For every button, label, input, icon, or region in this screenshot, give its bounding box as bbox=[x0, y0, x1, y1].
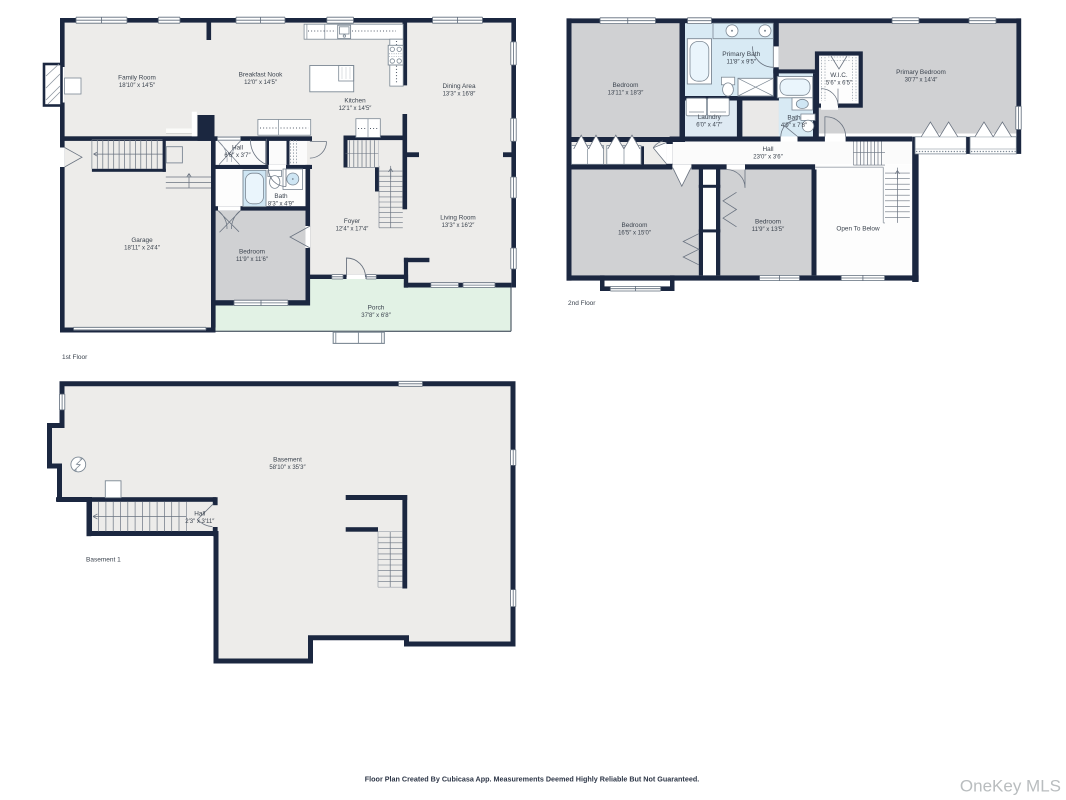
svg-text:18′10″ x 14′5″: 18′10″ x 14′5″ bbox=[119, 83, 156, 89]
svg-text:Primary Bedroom: Primary Bedroom bbox=[896, 69, 946, 76]
svg-text:Primary Bath: Primary Bath bbox=[722, 51, 760, 58]
svg-text:Breakfast Nook: Breakfast Nook bbox=[239, 72, 283, 79]
svg-text:Bedroom: Bedroom bbox=[613, 82, 639, 89]
svg-text:8′3″ x 4′9″: 8′3″ x 4′9″ bbox=[268, 202, 295, 208]
svg-text:30′7″ x 14′4″: 30′7″ x 14′4″ bbox=[905, 78, 939, 84]
svg-text:Garage: Garage bbox=[131, 237, 153, 244]
svg-text:2nd Floor: 2nd Floor bbox=[568, 300, 596, 307]
svg-text:Hall: Hall bbox=[762, 146, 773, 153]
svg-text:Dining Area: Dining Area bbox=[442, 83, 475, 90]
svg-text:11′9″ x 13′5″: 11′9″ x 13′5″ bbox=[752, 227, 785, 233]
svg-text:Bedroom: Bedroom bbox=[622, 222, 648, 229]
svg-text:Basement 1: Basement 1 bbox=[86, 557, 121, 564]
svg-text:6′0″ x 4′7″: 6′0″ x 4′7″ bbox=[696, 123, 723, 129]
svg-text:13′3″ x 16′2″: 13′3″ x 16′2″ bbox=[442, 223, 476, 229]
svg-text:Laundry: Laundry bbox=[698, 114, 722, 121]
svg-text:Floor Plan Created By Cubicasa: Floor Plan Created By Cubicasa App. Meas… bbox=[365, 775, 699, 784]
svg-text:16′5″ x 15′0″: 16′5″ x 15′0″ bbox=[618, 231, 652, 237]
svg-text:11′9″ x 11′6″: 11′9″ x 11′6″ bbox=[236, 257, 269, 263]
svg-text:W.I.C.: W.I.C. bbox=[830, 72, 848, 79]
svg-text:Living Room: Living Room bbox=[440, 215, 476, 222]
svg-text:23′0″ x 3′6″: 23′0″ x 3′6″ bbox=[753, 155, 783, 161]
svg-text:Bath: Bath bbox=[787, 115, 801, 122]
svg-text:13′3″ x 16′8″: 13′3″ x 16′8″ bbox=[443, 92, 477, 98]
svg-text:13′11″ x 18′3″: 13′11″ x 18′3″ bbox=[608, 91, 645, 97]
svg-text:Foyer: Foyer bbox=[344, 218, 361, 225]
svg-text:37′8″ x 6′8″: 37′8″ x 6′8″ bbox=[361, 313, 391, 319]
svg-text:12′0″ x 14′5″: 12′0″ x 14′5″ bbox=[244, 80, 278, 86]
svg-text:Bedroom: Bedroom bbox=[239, 249, 265, 256]
svg-text:6′6″ x 3′7″: 6′6″ x 3′7″ bbox=[224, 153, 251, 159]
svg-text:11′8″ x 9′5″: 11′8″ x 9′5″ bbox=[727, 59, 757, 66]
svg-text:Kitchen: Kitchen bbox=[344, 98, 366, 105]
svg-text:Family Room: Family Room bbox=[118, 75, 156, 82]
svg-text:Bedroom: Bedroom bbox=[755, 219, 781, 226]
svg-text:Hall: Hall bbox=[232, 145, 243, 152]
svg-text:Open To Below: Open To Below bbox=[836, 226, 880, 233]
svg-text:4′9″ x 7′8″: 4′9″ x 7′8″ bbox=[781, 123, 808, 129]
svg-text:1st Floor: 1st Floor bbox=[62, 354, 88, 361]
svg-text:2′3″ x 3′11″: 2′3″ x 3′11″ bbox=[185, 519, 215, 525]
svg-text:Porch: Porch bbox=[368, 305, 385, 312]
svg-text:12′1″ x 14′5″: 12′1″ x 14′5″ bbox=[339, 106, 373, 112]
svg-text:12′4″ x 17′4″: 12′4″ x 17′4″ bbox=[336, 227, 370, 233]
svg-text:5′6″ x 6′5″: 5′6″ x 6′5″ bbox=[826, 81, 853, 87]
svg-text:18′11″ x 24′4″: 18′11″ x 24′4″ bbox=[124, 246, 161, 252]
svg-text:OneKey MLS: OneKey MLS bbox=[960, 777, 1061, 796]
svg-text:Basement: Basement bbox=[273, 457, 302, 464]
svg-text:Hall: Hall bbox=[194, 511, 205, 518]
svg-text:58′10″ x 35′3″: 58′10″ x 35′3″ bbox=[269, 465, 306, 471]
svg-text:Bath: Bath bbox=[274, 193, 288, 200]
